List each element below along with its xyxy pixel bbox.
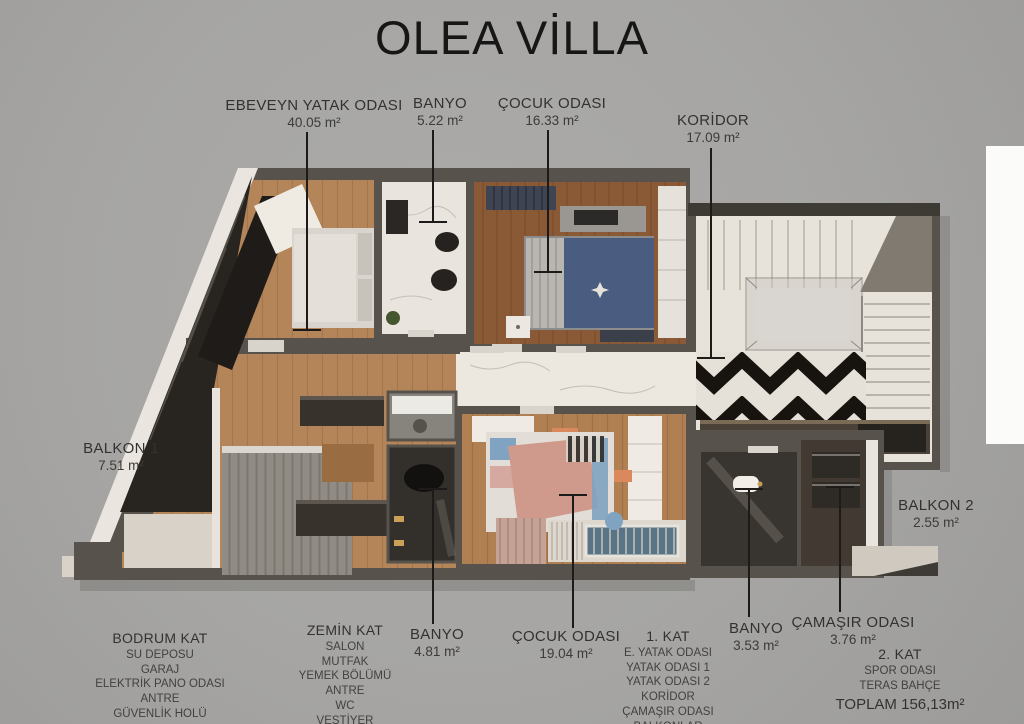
room-area: 7.51 m² [83,458,159,473]
floor-summary-1-kat: 1. KAT E. YATAK ODASIYATAK ODASI 1YATAK … [601,628,734,724]
room-name: KORİDOR [677,112,749,129]
floor-room-line: BALKONLAR [601,720,734,724]
room-area: 3.53 m² [729,638,783,653]
leader-cap-banyo-3 [735,488,763,490]
room-area: 16.33 m² [498,113,606,128]
room-area: 40.05 m² [225,115,402,130]
floor-total: TOPLAM 156,13m² [836,696,965,713]
floor-room-line: YEMEK BÖLÜMÜ [281,669,409,684]
floor-rooms: E. YATAK ODASIYATAK ODASI 1YATAK ODASI 2… [601,646,734,724]
room-name: BANYO [410,626,464,643]
floor-room-line: WC [281,699,409,714]
floor-room-line: SPOR ODASI [836,664,965,679]
room-name: BANYO [729,620,783,637]
floor-room-line: ÇAMAŞIR ODASI [601,705,734,720]
room-label-camasir-odasi: ÇAMAŞIR ODASI 3.76 m² [791,614,914,647]
room-name: ÇOCUK ODASI [498,95,606,112]
room-label-cocuk-odasi-1: ÇOCUK ODASI 16.33 m² [498,95,606,128]
floor-rooms: SU DEPOSUGARAJELEKTRİK PANO ODASIANTREGÜ… [93,648,226,722]
page-title: OLEA VİLLA [0,10,1024,65]
floor-room-line: ANTRE [281,684,409,699]
leader-cap-cocuk-1 [534,271,562,273]
floor-room-line: VESTİYER [281,714,409,724]
room-label-banyo-zemin: BANYO 4.81 m² [410,626,464,659]
floor-title: BODRUM KAT [93,630,226,646]
floor-room-line: ANTRE [93,692,226,707]
floor-room-line: MUTFAK [281,655,409,670]
floor-summary-bodrum-kat: BODRUM KAT SU DEPOSUGARAJELEKTRİK PANO O… [93,630,226,724]
floor-title: 2. KAT [836,646,965,662]
floor-summary-2-kat: 2. KAT SPOR ODASITERAS BAHÇE TOPLAM 156,… [836,646,965,713]
floor-room-line: TERAS BAHÇE [836,679,965,694]
leader-banyo-2 [432,489,434,624]
room-name: EBEVEYN YATAK ODASI [225,97,402,114]
floor-room-line: GARAJ [93,663,226,678]
poster-canvas: OLEA VİLLA EBEVEYN YATAK ODASI 40.05 m² … [0,0,1024,724]
leader-camasir [839,487,841,612]
floor-room-line: SU DEPOSU [93,648,226,663]
leader-ebeveyn [306,132,308,330]
corridor-floor [456,352,696,406]
room-area: 3.76 m² [791,632,914,647]
floor-room-line: KORİDOR [601,690,734,705]
leader-cap-banyo-2 [419,488,447,490]
room-area: 17.09 m² [677,130,749,145]
floor-room-line: YATAK ODASI 2 [601,675,734,690]
room-label-balkon-2: BALKON 2 2.55 m² [898,497,974,530]
leader-banyo-top [432,130,434,222]
floor-title: ZEMİN KAT [281,622,409,638]
room-name: BALKON 2 [898,497,974,514]
room-label-balkon-1: BALKON 1 7.51 m² [83,440,159,473]
room-area: 4.81 m² [410,644,464,659]
leader-banyo-3 [748,489,750,617]
room-label-banyo-alt: BANYO 3.53 m² [729,620,783,653]
leader-cap-ebeveyn [293,329,321,331]
floor-room-line: GÜVENLİK HOLÜ [93,707,226,722]
leader-cap-banyo-top [419,221,447,223]
room-name: BANYO [413,95,467,112]
leader-cap-koridor [697,357,725,359]
floor-rooms: SALONMUTFAKYEMEK BÖLÜMÜANTREWCVESTİYER [281,640,409,724]
floor-room-line: YATAK ODASI 1 [601,661,734,676]
floor-room-line: SALON [281,640,409,655]
room-label-ebeveyn-yatak-odasi: EBEVEYN YATAK ODASI 40.05 m² [225,97,402,130]
floor-room-line: E. YATAK ODASI [601,646,734,661]
leader-cap-cocuk-2 [559,494,587,496]
floor-title: 1. KAT [601,628,734,644]
room-label-banyo-ust: BANYO 5.22 m² [413,95,467,128]
room-area: 2.55 m² [898,515,974,530]
leader-cocuk-1 [547,130,549,272]
floor-summary-zemin-kat: ZEMİN KAT SALONMUTFAKYEMEK BÖLÜMÜANTREWC… [281,622,409,724]
room-area: 5.22 m² [413,113,467,128]
floor-rooms: SPOR ODASITERAS BAHÇE [836,664,965,693]
background-white-band [986,146,1024,444]
leader-cap-camasir [826,486,854,488]
chevron-rug [696,352,866,420]
leader-koridor [710,148,712,358]
room-name: ÇAMAŞIR ODASI [791,614,914,631]
room-label-koridor: KORİDOR 17.09 m² [677,112,749,145]
floor-room-line: ELEKTRİK PANO ODASI [93,677,226,692]
room-name: BALKON 1 [83,440,159,457]
leader-cocuk-2 [572,495,574,628]
